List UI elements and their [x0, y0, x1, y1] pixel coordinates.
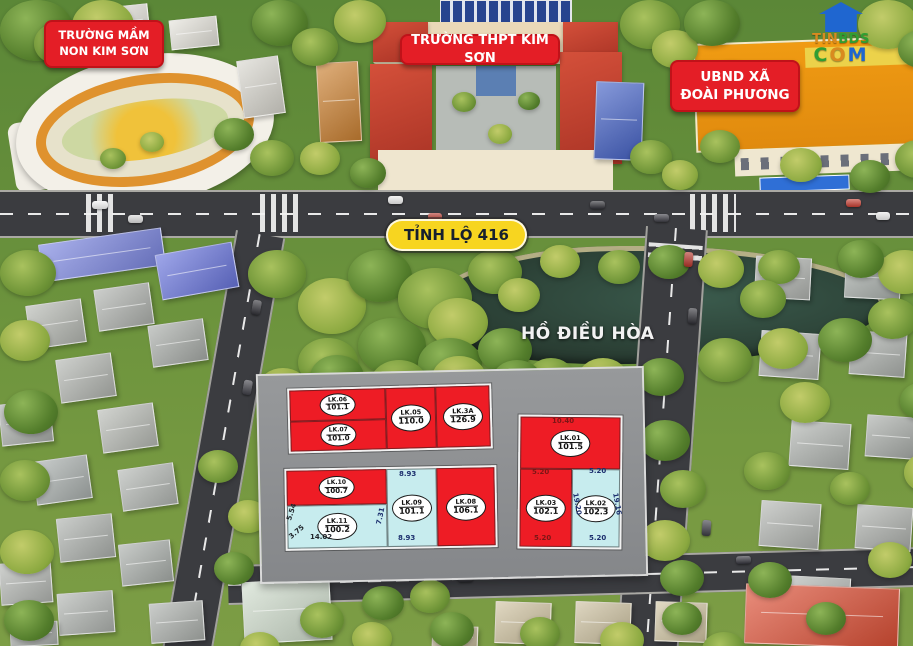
plot-lk-07[interactable]: LK.07101.0 — [290, 419, 387, 452]
kindergarten-sign-line2: NON KIM SƠN — [59, 44, 149, 60]
crosswalk — [690, 194, 736, 232]
tree — [248, 250, 306, 298]
tree — [758, 328, 808, 369]
tree — [362, 586, 404, 620]
dimension-label: 14.02 — [310, 533, 332, 541]
dimension-label: 10.40 — [552, 417, 574, 425]
house-roof — [117, 462, 178, 511]
house-roof — [55, 352, 117, 403]
tree — [640, 420, 690, 461]
tree — [4, 600, 54, 641]
house-roof — [788, 420, 851, 470]
kindergarten-sign: TRƯỜNG MẦM NON KIM SƠN — [44, 20, 164, 68]
crosswalk — [86, 194, 118, 232]
house-roof — [147, 318, 208, 367]
watermark-m: M — [848, 44, 869, 66]
tree — [292, 28, 338, 66]
tree — [660, 470, 706, 508]
tree — [540, 245, 580, 278]
house-roof — [316, 61, 362, 143]
tree — [300, 602, 344, 638]
dimension-label: 5.20 — [532, 468, 549, 476]
tree — [410, 580, 450, 613]
car — [590, 201, 605, 209]
lake-name-label: HỒ ĐIỀU HÒA — [521, 324, 654, 344]
dimension-label: 8.93 — [399, 470, 416, 478]
car — [654, 214, 669, 222]
house-roof — [57, 590, 116, 636]
dimension-label: 5.20 — [589, 534, 606, 542]
road-name-text: TỈNH LỘ 416 — [404, 226, 509, 244]
tree — [638, 358, 684, 396]
house-roof — [118, 539, 174, 586]
car — [128, 215, 143, 223]
commune-sign-line2: ĐOÀI PHƯƠNG — [680, 86, 789, 104]
tree — [702, 632, 746, 646]
tree — [868, 298, 913, 339]
tree — [780, 382, 830, 423]
tree — [660, 560, 704, 596]
tree — [684, 0, 740, 46]
high-school-sign: TRƯỜNG THPT KIM SƠN — [400, 34, 560, 65]
high-school-building — [368, 0, 623, 192]
tree — [350, 158, 386, 188]
tree — [748, 562, 792, 598]
plot-lk-06[interactable]: LK.06101.1 — [289, 388, 386, 421]
plot-badge: LK.08106.1 — [446, 493, 486, 521]
plot-badge: LK.10100.7 — [318, 476, 354, 500]
tree — [488, 124, 512, 144]
plot-badge: LK.06101.1 — [319, 393, 356, 417]
plot-lk-05[interactable]: LK.05110.0 — [385, 387, 437, 449]
tree — [744, 452, 790, 490]
high-school-sign-text: TRƯỜNG THPT KIM SƠN — [402, 32, 558, 67]
house-roof — [169, 16, 220, 51]
plot-badge: LK.3A126.9 — [443, 403, 484, 431]
site-plan-scene: LK.06101.1 LK.07101.0 LK.05110.0 LK.3A12… — [0, 0, 913, 646]
tinbds-watermark: TINBDS COM — [806, 2, 876, 65]
tree — [830, 472, 870, 505]
plot-lk-3a[interactable]: LK.3A126.9 — [435, 385, 491, 447]
tree — [250, 140, 294, 176]
tree — [698, 250, 744, 288]
car — [687, 308, 697, 325]
tree — [214, 118, 254, 151]
plot-badge: LK.07101.0 — [320, 423, 357, 447]
tree — [214, 552, 254, 585]
school-courtyard-pool — [476, 66, 516, 96]
tree — [430, 612, 474, 646]
house-icon — [819, 2, 863, 32]
house-roof — [236, 55, 286, 118]
tree — [352, 622, 392, 646]
house-roof — [97, 402, 159, 453]
tree — [868, 542, 912, 578]
house-roof — [56, 513, 116, 563]
car — [846, 199, 861, 207]
tree — [518, 92, 540, 110]
car — [683, 252, 693, 268]
tree — [198, 450, 238, 483]
tree — [140, 132, 164, 152]
tree — [700, 130, 740, 163]
plot-block-right: LK.01101.5 LK.03102.1 LK.02102.3 — [517, 415, 622, 550]
watermark-line2: COM — [806, 46, 876, 65]
plot-badge: LK.01101.5 — [550, 429, 590, 456]
house-roof — [758, 500, 821, 550]
tree — [900, 382, 913, 420]
dimension-label: 5.20 — [534, 534, 551, 542]
car — [876, 212, 890, 220]
car — [388, 196, 403, 204]
tree — [0, 320, 50, 361]
watermark-c: C — [813, 44, 829, 66]
dimension-label: 5.20 — [589, 467, 606, 475]
tree — [300, 142, 340, 175]
commune-office-sign: UBND XÃ ĐOÀI PHƯƠNG — [670, 60, 800, 112]
plot-block-top: LK.06101.1 LK.07101.0 LK.05110.0 LK.3A12… — [287, 383, 493, 453]
kindergarten-sign-line1: TRƯỜNG MẦM — [58, 28, 149, 44]
tree — [0, 530, 54, 574]
tree — [838, 240, 884, 278]
tree — [0, 460, 50, 501]
car — [701, 520, 711, 537]
plot-badge: LK.05110.0 — [391, 404, 432, 432]
tree — [662, 602, 702, 635]
car — [92, 201, 108, 209]
tree — [520, 617, 560, 646]
school-lower-block — [378, 150, 613, 190]
tree — [662, 160, 698, 190]
tree — [850, 160, 890, 193]
tree — [806, 602, 846, 635]
car — [736, 556, 751, 565]
tree — [698, 338, 752, 382]
tree — [452, 92, 476, 112]
house-roof — [93, 282, 154, 331]
dimension-label: 8.93 — [398, 534, 415, 542]
house-roof — [149, 600, 206, 644]
commune-sign-line1: UBND XÃ — [700, 68, 769, 86]
tree — [818, 318, 872, 362]
plot-badge: LK.03102.1 — [526, 494, 566, 521]
road-name-badge: TỈNH LỘ 416 — [386, 219, 527, 251]
plot-lk-10[interactable]: LK.10100.7 — [286, 469, 386, 506]
watermark-o: O — [829, 44, 847, 66]
tree — [334, 0, 386, 43]
tree — [740, 280, 786, 318]
house-roof — [865, 414, 913, 459]
tree — [0, 250, 56, 296]
plot-lk-08[interactable]: LK.08106.1 — [436, 467, 496, 546]
crosswalk — [260, 194, 300, 232]
tree — [4, 390, 58, 434]
plot-badge: LK.09101.1 — [392, 494, 432, 522]
